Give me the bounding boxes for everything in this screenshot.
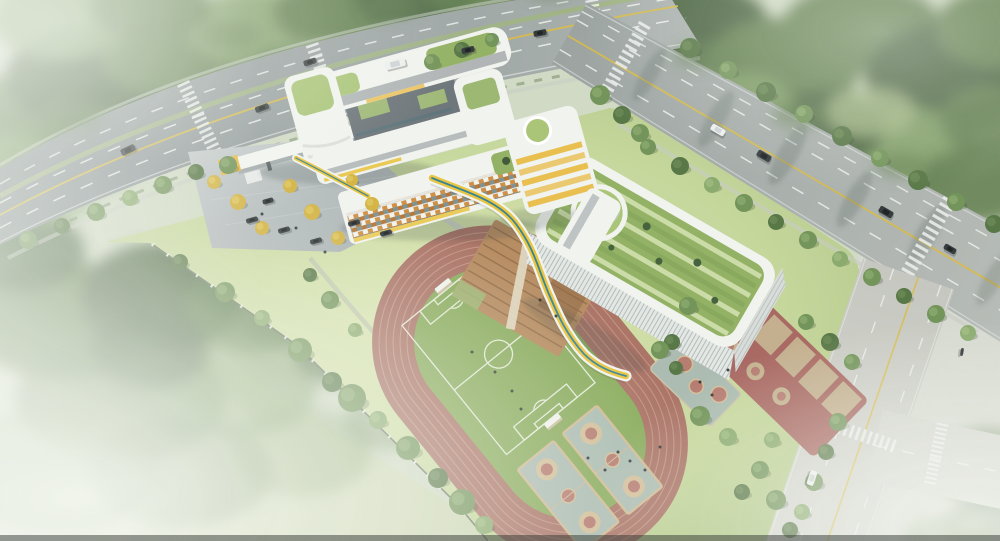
overall-veil bbox=[0, 0, 1000, 541]
scene-canvas bbox=[0, 0, 1000, 541]
bottom-border bbox=[0, 535, 1000, 541]
aerial-campus-rendering bbox=[0, 0, 1000, 541]
haze-overlay bbox=[0, 0, 1000, 541]
